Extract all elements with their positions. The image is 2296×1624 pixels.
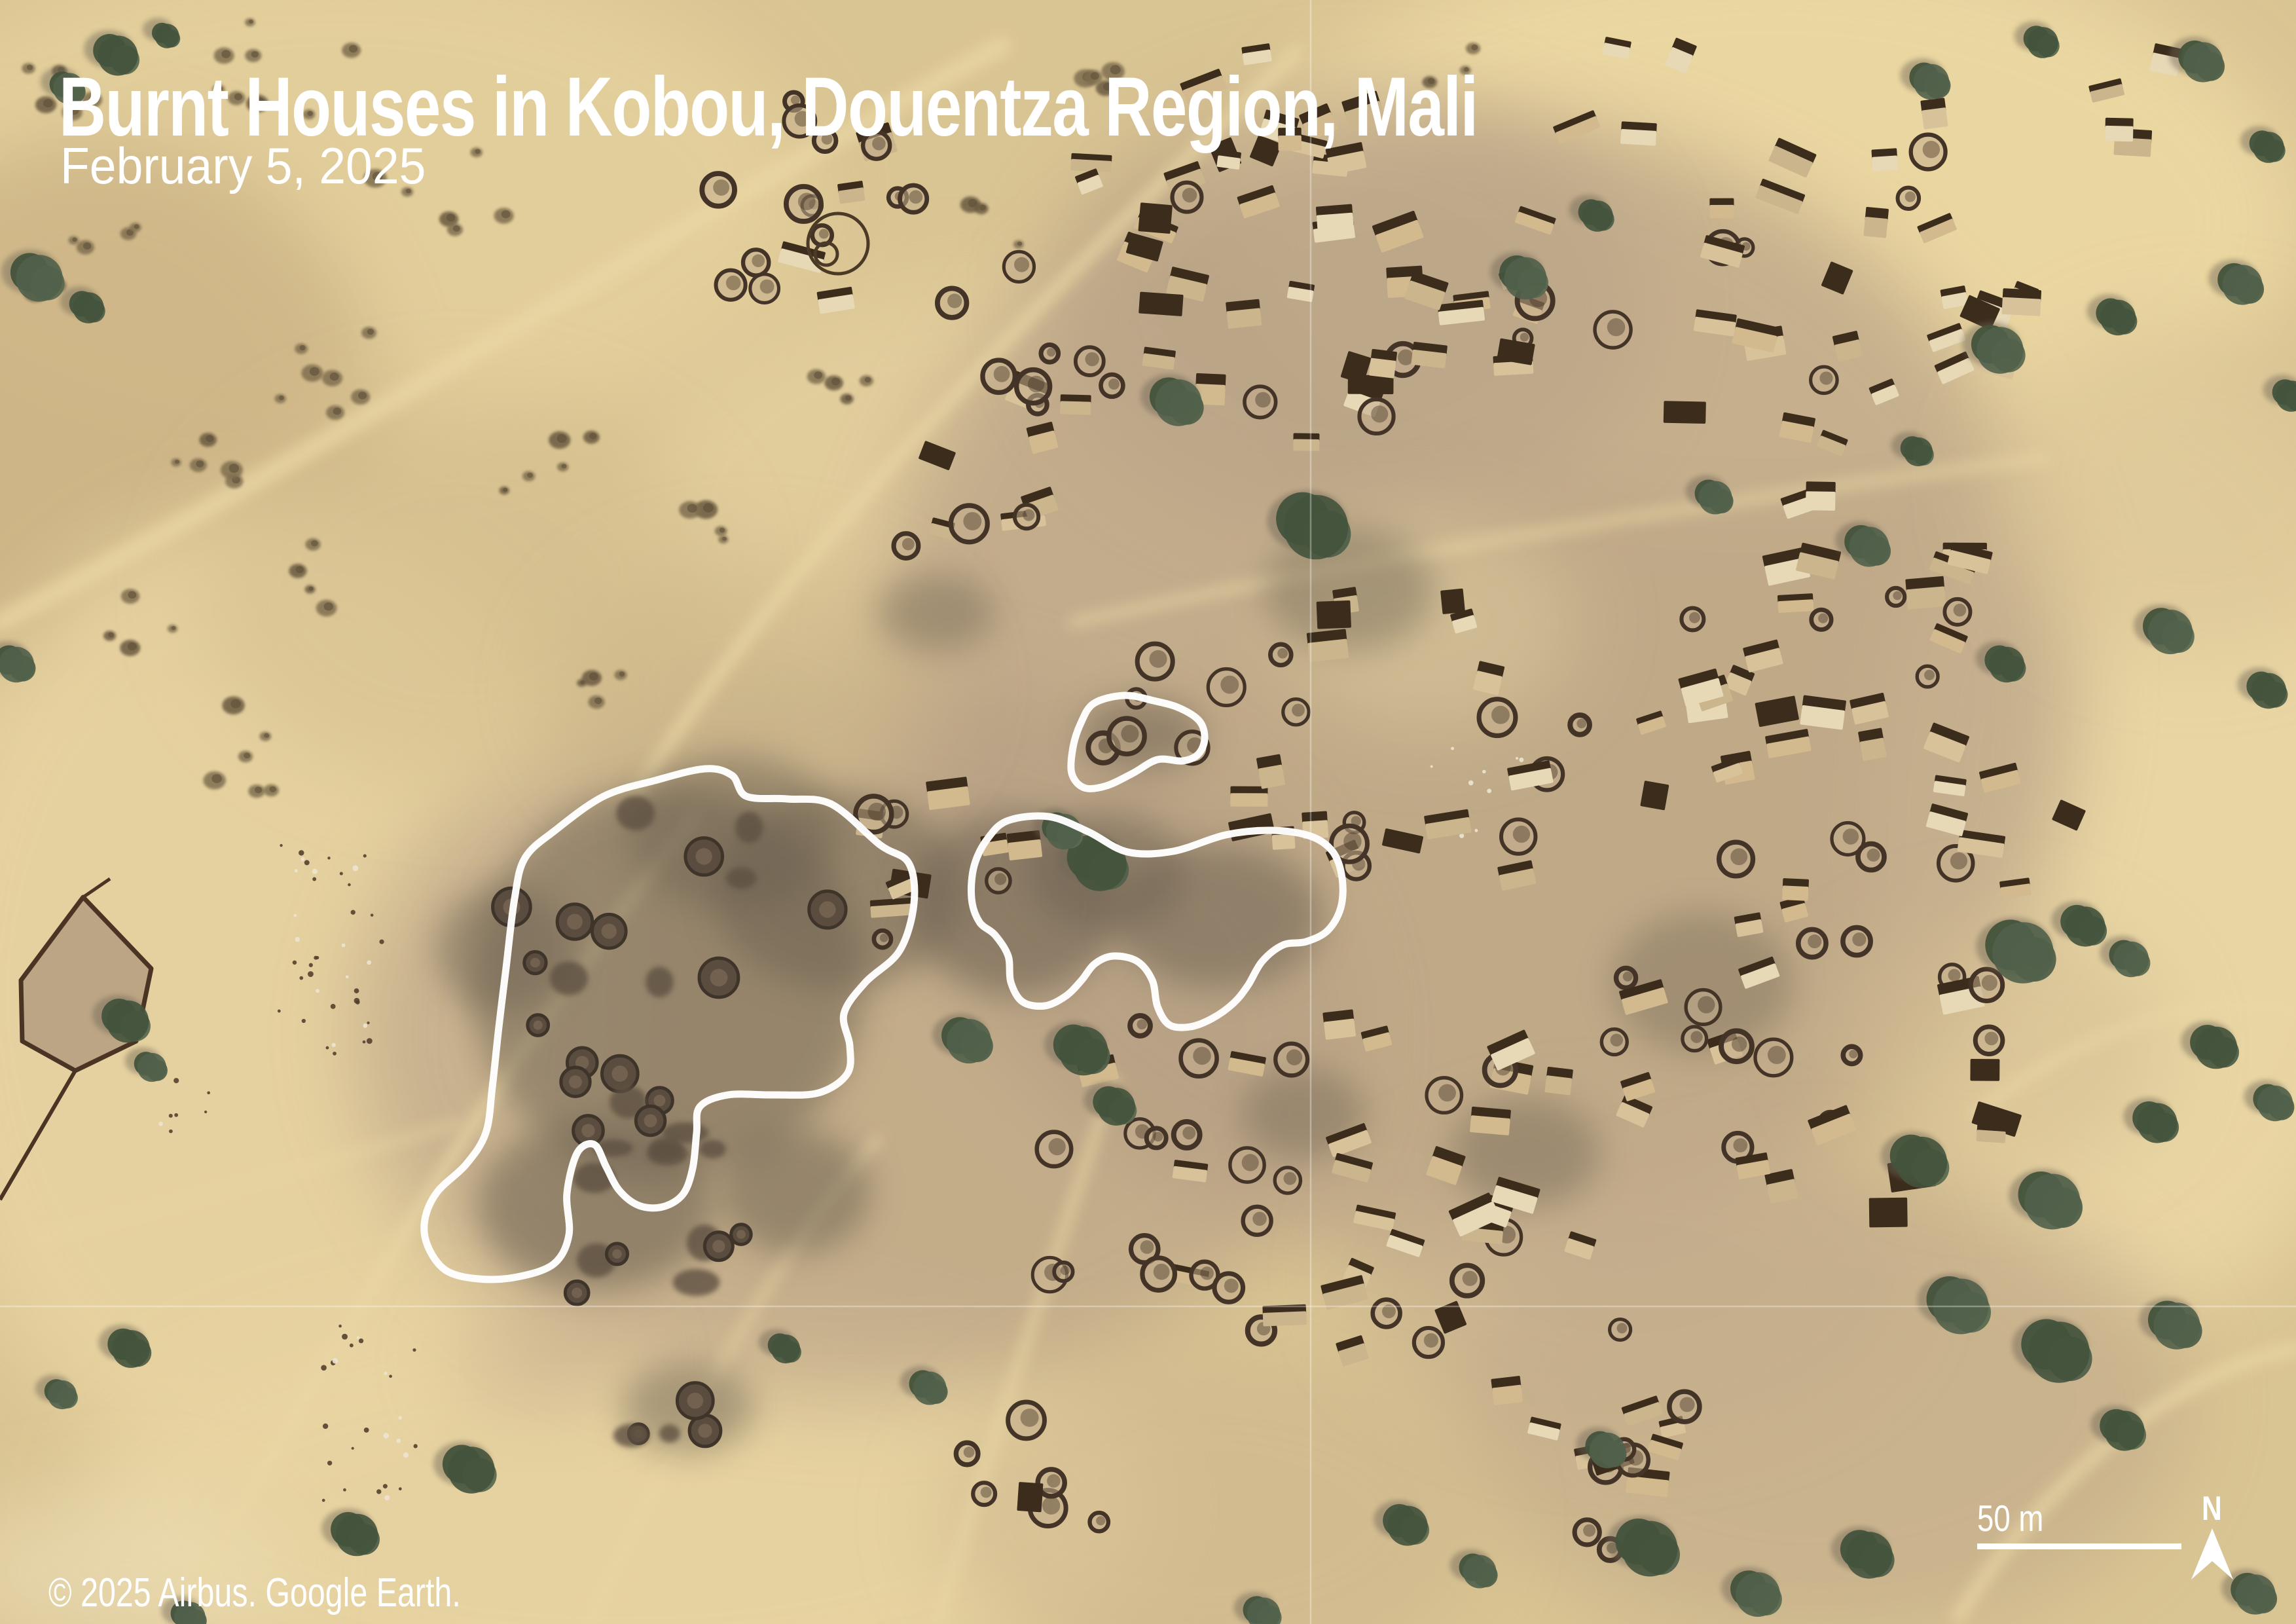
building — [1905, 576, 1946, 610]
building — [1640, 781, 1669, 810]
building — [1470, 1107, 1511, 1135]
building — [1226, 299, 1262, 329]
building — [1139, 292, 1184, 317]
building — [1440, 589, 1465, 615]
building — [1620, 121, 1657, 145]
building — [1307, 629, 1349, 662]
burnt-structure — [613, 1424, 649, 1447]
building — [1293, 433, 1319, 451]
building — [1316, 204, 1354, 232]
burnt-structure — [550, 961, 588, 995]
building — [1411, 342, 1448, 369]
building — [1070, 153, 1112, 173]
building — [837, 181, 866, 204]
north-arrow-icon — [2191, 1528, 2233, 1579]
building — [926, 777, 970, 810]
building — [1777, 593, 1814, 613]
building — [1858, 728, 1887, 761]
burnt-structure — [673, 1269, 720, 1296]
building — [1317, 600, 1351, 629]
building — [1369, 349, 1397, 378]
building — [1017, 1482, 1043, 1512]
building — [2105, 118, 2134, 142]
building — [1060, 394, 1091, 415]
building — [1230, 786, 1267, 807]
building — [870, 897, 915, 917]
building — [1322, 1009, 1356, 1040]
building — [1544, 1067, 1573, 1096]
satellite-figure: Burnt Houses in Kobou, Douentza Region, … — [0, 0, 2296, 1624]
burnt-structure — [616, 796, 655, 830]
scale-bar — [1977, 1543, 2181, 1549]
building — [1800, 695, 1846, 729]
building — [1869, 1198, 1908, 1228]
satellite-image — [0, 0, 2296, 1624]
figure-date: February 5, 2025 — [60, 140, 426, 191]
building — [1664, 401, 1706, 424]
building — [1491, 1376, 1523, 1405]
building — [1782, 878, 1809, 901]
copyright-credit: © 2025 Airbus. Google Earth. — [48, 1573, 461, 1614]
burnt-structure — [649, 1137, 682, 1160]
north-label: N — [2202, 1492, 2222, 1526]
scale-bar-label: 50 m — [1977, 1500, 2043, 1538]
building — [1970, 1059, 1999, 1081]
burnt-structure — [699, 1140, 726, 1158]
burnt-structure — [735, 812, 763, 843]
building — [2002, 288, 2042, 316]
building — [1863, 207, 1889, 238]
building — [1348, 375, 1394, 394]
burnt-structure — [659, 1424, 680, 1443]
building — [1920, 98, 1948, 129]
building — [1138, 202, 1173, 234]
building — [1871, 148, 1898, 171]
burnt-structure — [726, 868, 757, 889]
burnt-structure — [646, 967, 674, 997]
building — [1806, 481, 1836, 511]
building — [1709, 198, 1734, 218]
building — [1262, 1304, 1307, 1327]
building — [1977, 1124, 2007, 1143]
